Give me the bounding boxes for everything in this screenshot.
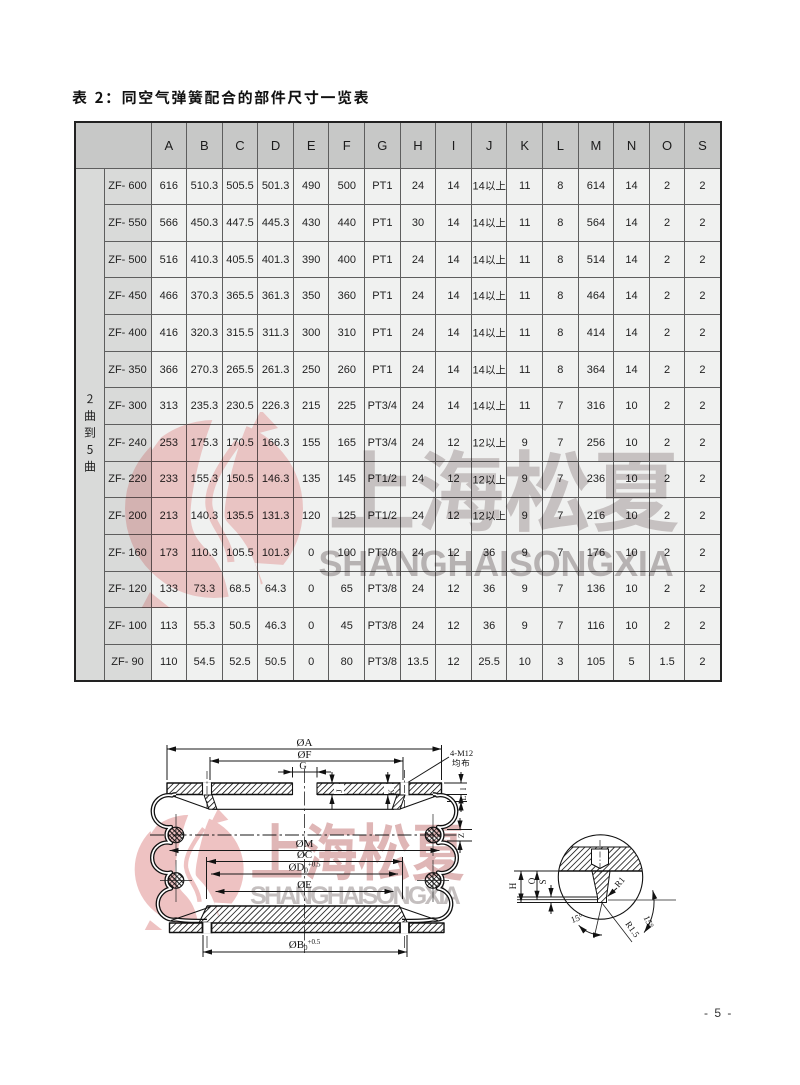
svg-text:ØE: ØE (297, 879, 312, 891)
svg-text:4-M12: 4-M12 (450, 748, 473, 758)
svg-text:H: H (508, 882, 518, 889)
svg-text:ØC: ØC (297, 849, 312, 861)
svg-text:S: S (538, 879, 548, 884)
svg-text:ØA: ØA (297, 737, 313, 749)
svg-text:L: L (459, 795, 468, 800)
svg-text:G: G (299, 761, 306, 772)
svg-text:O: O (527, 877, 537, 884)
svg-text:R1: R1 (612, 875, 626, 889)
svg-text:Z: Z (457, 833, 466, 838)
svg-text:I: I (459, 787, 468, 790)
svg-text:R1.5: R1.5 (623, 919, 641, 939)
svg-text:K: K (387, 789, 396, 795)
svg-text:15°: 15° (569, 911, 585, 925)
svg-text:ØF: ØF (297, 749, 311, 761)
svg-text:15°: 15° (642, 914, 657, 930)
svg-text:J: J (335, 789, 344, 792)
